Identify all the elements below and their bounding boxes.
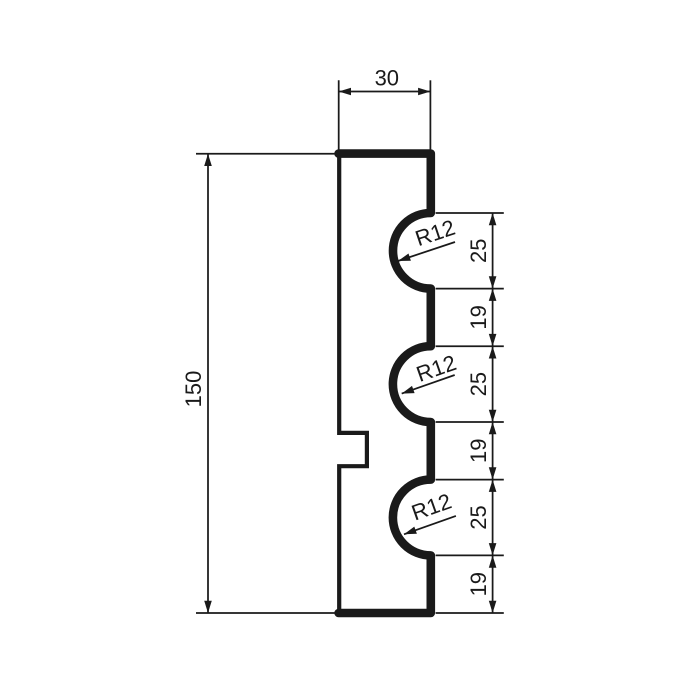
svg-text:R12: R12 bbox=[408, 488, 454, 525]
svg-text:25: 25 bbox=[466, 505, 491, 529]
svg-text:25: 25 bbox=[466, 239, 491, 263]
svg-text:19: 19 bbox=[466, 305, 491, 329]
svg-text:25: 25 bbox=[466, 372, 491, 396]
svg-text:19: 19 bbox=[466, 439, 491, 463]
svg-text:150: 150 bbox=[181, 371, 206, 408]
svg-text:R12: R12 bbox=[412, 215, 458, 252]
svg-text:19: 19 bbox=[466, 572, 491, 596]
svg-text:30: 30 bbox=[375, 65, 399, 90]
svg-text:R12: R12 bbox=[413, 350, 459, 387]
